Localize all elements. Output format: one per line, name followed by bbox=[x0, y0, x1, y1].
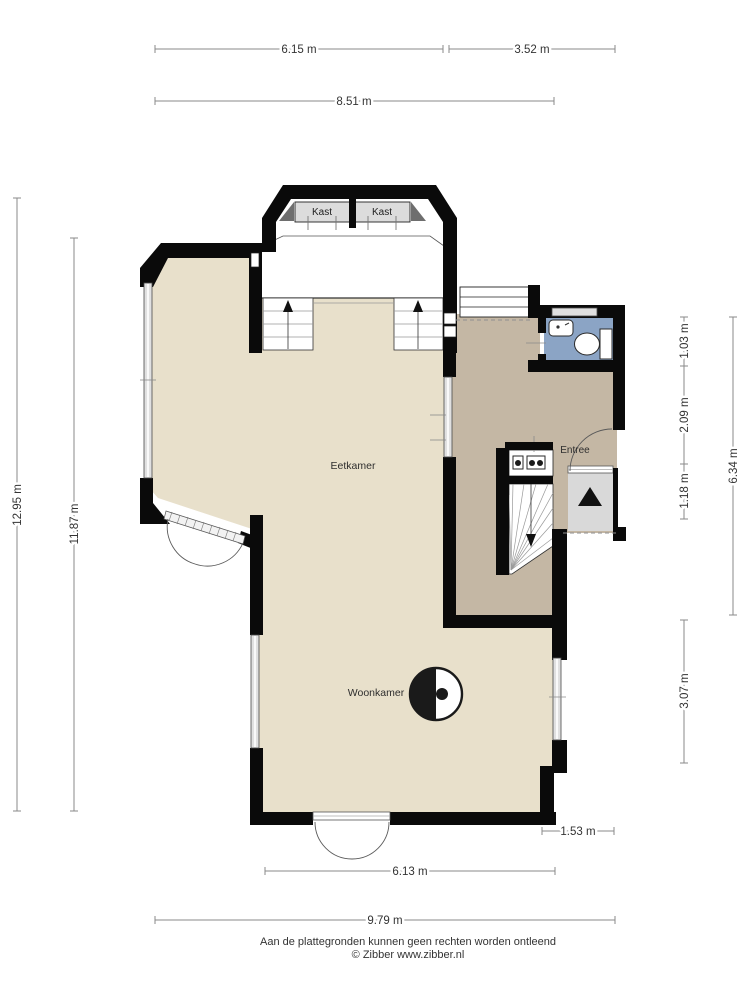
dim-bottom-3: 9.79 m bbox=[367, 915, 402, 927]
room-label-kast-left: Kast bbox=[312, 207, 332, 218]
room-label-woonkamer: Woonkamer bbox=[348, 687, 405, 699]
dim-right-5: 3.07 m bbox=[679, 673, 691, 708]
dim-right-2: 2.09 m bbox=[679, 397, 691, 432]
wall-woonkamer-east-up bbox=[552, 529, 567, 660]
dim-right-4: 6.34 m bbox=[728, 448, 740, 483]
door-swing-arc bbox=[315, 822, 352, 859]
raised-room-floor bbox=[262, 220, 444, 298]
footer-disclaimer: Aan de plattegronden kunnen geen rechten… bbox=[260, 936, 556, 948]
wall-woonkamer-corner bbox=[540, 766, 554, 825]
wall-stair-west bbox=[496, 448, 509, 575]
dim-left-1: 12.95 m bbox=[12, 484, 24, 526]
wall-bottom-right bbox=[390, 812, 556, 825]
wall-woonkamer-west-up bbox=[250, 515, 263, 635]
stove-icon bbox=[410, 668, 462, 720]
wall-bay-divider bbox=[349, 199, 356, 228]
window-toilet bbox=[552, 308, 597, 316]
wall-corner-block bbox=[613, 527, 626, 541]
room-label-entree: Entree bbox=[560, 445, 590, 456]
dim-right-1: 1.03 m bbox=[679, 323, 691, 358]
entrance-steps bbox=[460, 287, 530, 317]
wall-east-exterior bbox=[613, 305, 625, 430]
wall-door-frame bbox=[613, 468, 618, 532]
wall-eetkamer-east-low bbox=[443, 457, 456, 628]
footer-copyright: © Zibber www.zibber.nl bbox=[352, 949, 465, 961]
wall-toilet-west-a bbox=[538, 318, 546, 333]
wall-hal-bottom bbox=[443, 615, 556, 628]
sink-icon bbox=[549, 320, 573, 336]
dim-right-3: 1.18 m bbox=[679, 473, 691, 508]
entree-mat bbox=[568, 466, 613, 531]
wall-steps-side bbox=[528, 285, 540, 318]
wall-woonkamer-east-low bbox=[552, 740, 567, 773]
wall-meterkast-bottom bbox=[509, 476, 553, 484]
dim-top-1: 6.15 m bbox=[281, 44, 316, 56]
wall-meterkast-top bbox=[505, 442, 553, 450]
door-swing-arc bbox=[352, 822, 389, 859]
wall-eetkamer-east-up bbox=[443, 353, 456, 377]
dim-left-2: 11.87 m bbox=[69, 504, 81, 545]
floor-plan-page: Kast Kast Eetkamer Woonkamer Entree 6.15… bbox=[0, 0, 750, 1000]
dim-top-3: 8.51 m bbox=[336, 96, 371, 108]
bay-corner-right bbox=[411, 202, 426, 221]
wall-toilet-west-b bbox=[538, 354, 546, 372]
room-label-kast-right: Kast bbox=[372, 207, 392, 218]
dim-bottom-1: 1.53 m bbox=[560, 826, 595, 838]
door-swing-arc bbox=[195, 543, 243, 566]
dim-top-2: 3.52 m bbox=[514, 44, 549, 56]
meter-cupboard-icon bbox=[513, 456, 545, 469]
wall-bottom-left bbox=[250, 812, 313, 825]
dim-bottom-2: 6.13 m bbox=[392, 866, 427, 878]
floor-plan-drawing: Kast Kast Eetkamer Woonkamer Entree 6.15… bbox=[0, 0, 750, 1000]
room-label-eetkamer: Eetkamer bbox=[331, 460, 376, 472]
